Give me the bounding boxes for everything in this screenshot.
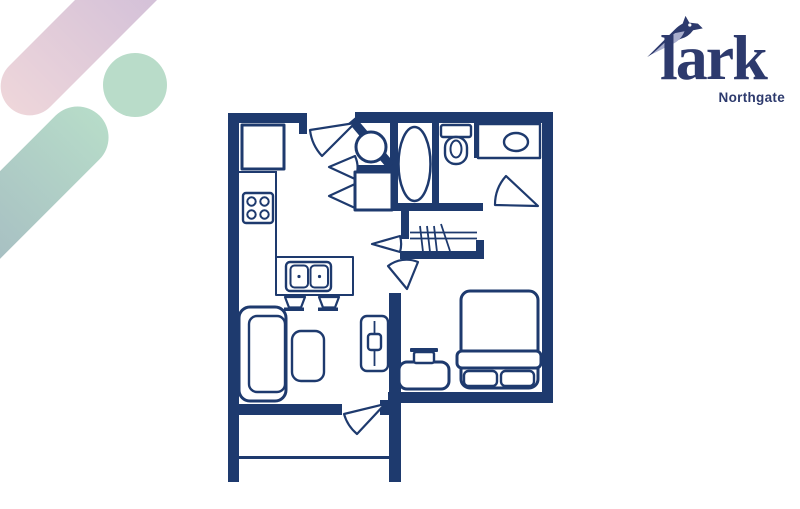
stove-cooktop-icon bbox=[243, 193, 273, 223]
burner bbox=[247, 197, 255, 205]
wall-hall bbox=[401, 211, 409, 239]
decor-mint-circle bbox=[103, 53, 167, 117]
coffee-table-icon bbox=[292, 331, 324, 381]
laundry-closet bbox=[355, 132, 392, 210]
bedroom-door bbox=[388, 260, 418, 289]
wall-toilet-vanity bbox=[474, 123, 477, 158]
entry-door bbox=[310, 123, 355, 156]
lamp-shade bbox=[414, 352, 434, 363]
kitchen bbox=[239, 125, 353, 311]
decor-teal-capsule bbox=[0, 94, 121, 329]
burner bbox=[247, 210, 255, 218]
laundry-door-washer bbox=[329, 156, 357, 179]
hall-closet-door bbox=[372, 236, 401, 252]
bar-stool bbox=[319, 297, 339, 308]
sink-drain-left bbox=[297, 275, 300, 278]
wall-top-left bbox=[228, 113, 307, 123]
wall-right bbox=[542, 112, 553, 403]
living-room bbox=[239, 307, 388, 401]
bathroom-door bbox=[495, 176, 538, 206]
burner bbox=[260, 197, 268, 205]
refrigerator-icon bbox=[242, 125, 284, 169]
wall-middle bbox=[389, 293, 401, 482]
bar-stool-base bbox=[318, 308, 338, 312]
hanger-mark bbox=[441, 224, 450, 251]
toilet-seat bbox=[451, 141, 462, 158]
wall-bedroom-bottom bbox=[388, 392, 553, 403]
wall-tub-toilet bbox=[432, 123, 439, 203]
balcony-door bbox=[344, 404, 385, 434]
toilet-tank bbox=[441, 125, 471, 137]
wall-top-right bbox=[355, 112, 552, 123]
balcony-railing bbox=[239, 456, 389, 459]
wall-closet-bottom bbox=[400, 251, 484, 259]
dryer-icon bbox=[355, 172, 392, 210]
wall-entry-stub bbox=[299, 113, 307, 134]
bar-stool bbox=[285, 297, 305, 308]
vanity-sink-icon bbox=[504, 133, 528, 151]
pillow bbox=[501, 371, 534, 386]
logo-location-label: Northgate bbox=[719, 90, 785, 105]
bedroom bbox=[399, 291, 541, 389]
wall-closet-right bbox=[476, 240, 484, 259]
logo-wordmark: lark bbox=[660, 22, 786, 94]
laundry-door-dryer bbox=[329, 184, 358, 208]
tv-icon bbox=[368, 334, 381, 350]
burner bbox=[260, 210, 268, 218]
brand-logo: lark Northgate bbox=[640, 6, 788, 110]
hall-closet bbox=[410, 224, 477, 252]
bench-icon bbox=[399, 362, 449, 389]
wall-left bbox=[228, 113, 239, 482]
sink-drain-right bbox=[318, 275, 321, 278]
wall-living-bottom bbox=[228, 404, 342, 415]
bathtub-icon bbox=[399, 127, 431, 201]
bed-blanket-band bbox=[457, 351, 541, 368]
floorplan bbox=[220, 100, 565, 490]
sofa-seat bbox=[249, 316, 285, 392]
wall-bathroom-bottom bbox=[393, 203, 483, 211]
decor-pink-capsule bbox=[0, 0, 199, 127]
washer-icon bbox=[356, 132, 386, 162]
bar-stool-base bbox=[284, 308, 304, 312]
pillow bbox=[464, 371, 497, 386]
